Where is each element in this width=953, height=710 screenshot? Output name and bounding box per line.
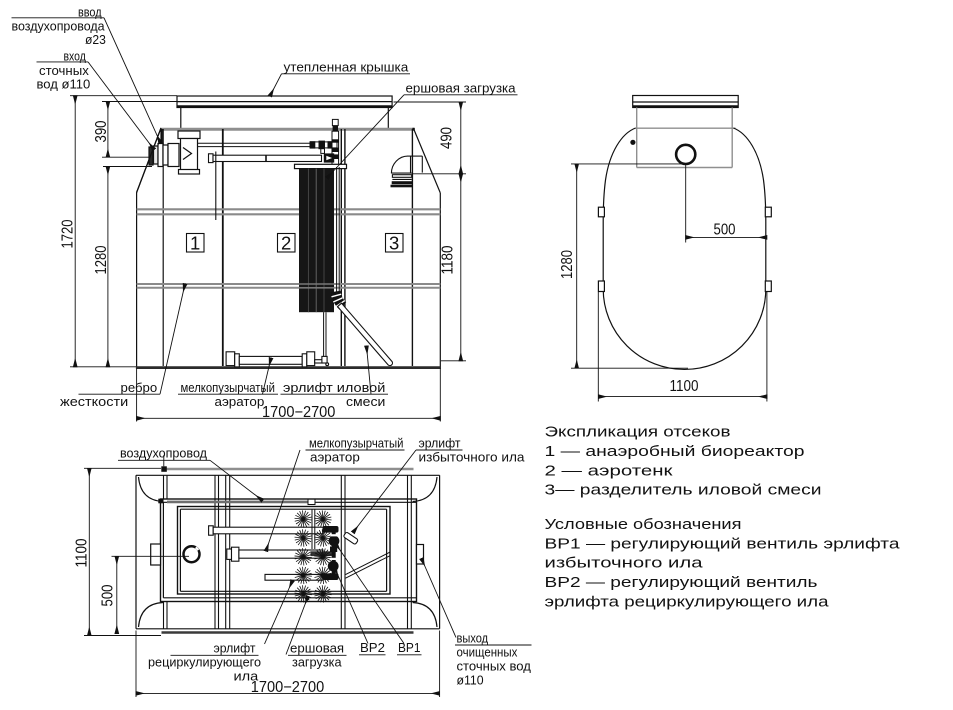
svg-text:1700−2700: 1700−2700 bbox=[262, 404, 336, 421]
svg-text:сточных вод: сточных вод bbox=[457, 659, 532, 674]
svg-text:3— разделитель иловой смеси: 3— разделитель иловой смеси bbox=[545, 482, 822, 499]
svg-text:утепленная крышка: утепленная крышка bbox=[284, 60, 409, 75]
svg-text:воздухопровод: воздухопровод bbox=[120, 446, 207, 461]
svg-text:ВР2: ВР2 bbox=[360, 640, 385, 655]
svg-text:аэратор: аэратор bbox=[215, 394, 265, 409]
svg-text:вход: вход bbox=[64, 49, 87, 64]
svg-text:2: 2 bbox=[281, 233, 291, 254]
svg-text:Экспликация отсеков: Экспликация отсеков bbox=[545, 424, 731, 441]
svg-text:1: 1 bbox=[190, 233, 200, 254]
svg-text:1180: 1180 bbox=[440, 245, 457, 274]
svg-text:ВР1: ВР1 bbox=[398, 640, 421, 655]
svg-text:ввод: ввод bbox=[78, 5, 102, 20]
svg-text:490: 490 bbox=[439, 127, 456, 149]
svg-text:ø23: ø23 bbox=[85, 32, 106, 47]
svg-text:1700−2700: 1700−2700 bbox=[251, 679, 325, 696]
svg-text:мелкопузырчатый: мелкопузырчатый bbox=[309, 436, 403, 451]
svg-text:1720: 1720 bbox=[60, 219, 77, 248]
svg-text:смеси: смеси bbox=[346, 394, 385, 409]
svg-text:очищенных: очищенных bbox=[457, 645, 518, 660]
svg-text:загрузка: загрузка bbox=[292, 655, 342, 670]
svg-text:3: 3 bbox=[389, 233, 399, 254]
svg-text:ершовая загрузка: ершовая загрузка bbox=[406, 81, 517, 96]
svg-text:аэратор: аэратор bbox=[310, 450, 360, 465]
svg-text:1100: 1100 bbox=[670, 378, 699, 395]
svg-text:жесткости: жесткости bbox=[60, 394, 128, 409]
svg-text:эрлифт: эрлифт bbox=[419, 436, 461, 451]
svg-text:2 — аэротенк: 2 — аэротенк bbox=[545, 463, 674, 480]
svg-text:ершовая: ершовая bbox=[290, 641, 344, 656]
svg-text:Условные обозначения: Условные обозначения bbox=[545, 516, 742, 533]
svg-text:ВР2 — регулирующий вентиль: ВР2 — регулирующий вентиль bbox=[545, 574, 818, 591]
svg-text:1280: 1280 bbox=[559, 250, 576, 279]
svg-text:эрлифта рециркулирующего ила: эрлифта рециркулирующего ила bbox=[545, 594, 830, 611]
svg-text:1 — анаэробный биореактор: 1 — анаэробный биореактор bbox=[545, 443, 805, 460]
svg-text:390: 390 bbox=[93, 120, 110, 142]
svg-text:ребро: ребро bbox=[121, 380, 158, 395]
svg-text:избыточного ила: избыточного ила bbox=[545, 555, 704, 572]
svg-text:избыточного ила: избыточного ила bbox=[419, 450, 526, 465]
svg-text:мелкопузырчатый: мелкопузырчатый bbox=[181, 380, 275, 395]
svg-text:500: 500 bbox=[714, 221, 736, 238]
svg-text:выход: выход bbox=[457, 631, 489, 646]
svg-text:ø110: ø110 bbox=[457, 673, 484, 688]
svg-text:1100: 1100 bbox=[74, 538, 91, 567]
svg-text:ила: ила bbox=[234, 669, 260, 684]
svg-text:рециркулирующего: рециркулирующего bbox=[148, 655, 261, 670]
svg-text:эрлифт: эрлифт bbox=[214, 641, 256, 656]
svg-text:1280: 1280 bbox=[93, 245, 110, 274]
svg-text:вод ø110: вод ø110 bbox=[37, 77, 91, 92]
svg-text:ВР1 — регулирующий вентиль эрл: ВР1 — регулирующий вентиль эрлифта bbox=[545, 536, 901, 553]
svg-text:500: 500 bbox=[99, 584, 116, 606]
